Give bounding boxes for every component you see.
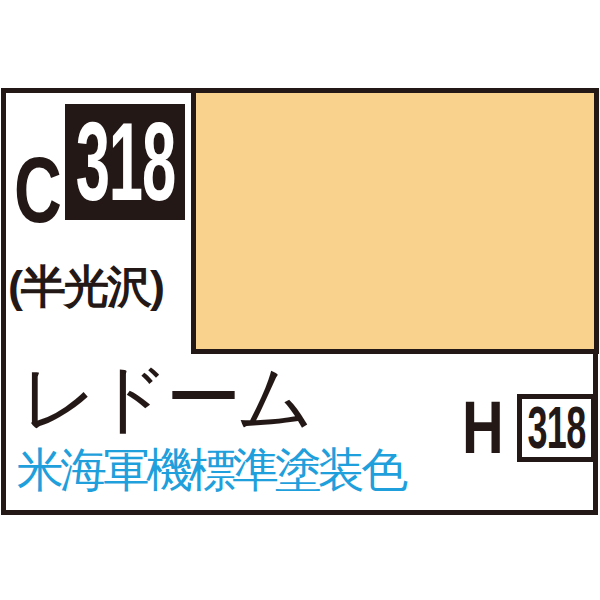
aqueous-prefix: H — [462, 391, 504, 465]
aqueous-number: 318 — [528, 398, 586, 458]
color-name: レドーム — [20, 358, 309, 438]
brand-code-prefix: C — [14, 144, 60, 236]
usage-note: 米海軍機標準塗装色 — [17, 444, 404, 496]
product-image: C 318 (半光沢) レドーム H 318 米海軍機標準塗装色 — [0, 0, 600, 600]
color-swatch — [191, 88, 599, 354]
brand-code-number-box: 318 — [65, 104, 185, 220]
brand-code-number: 318 — [75, 106, 174, 218]
aqueous-equivalent-code: H 318 — [462, 394, 596, 462]
aqueous-number-box: 318 — [517, 394, 596, 462]
finish-label: (半光沢) — [8, 262, 163, 312]
